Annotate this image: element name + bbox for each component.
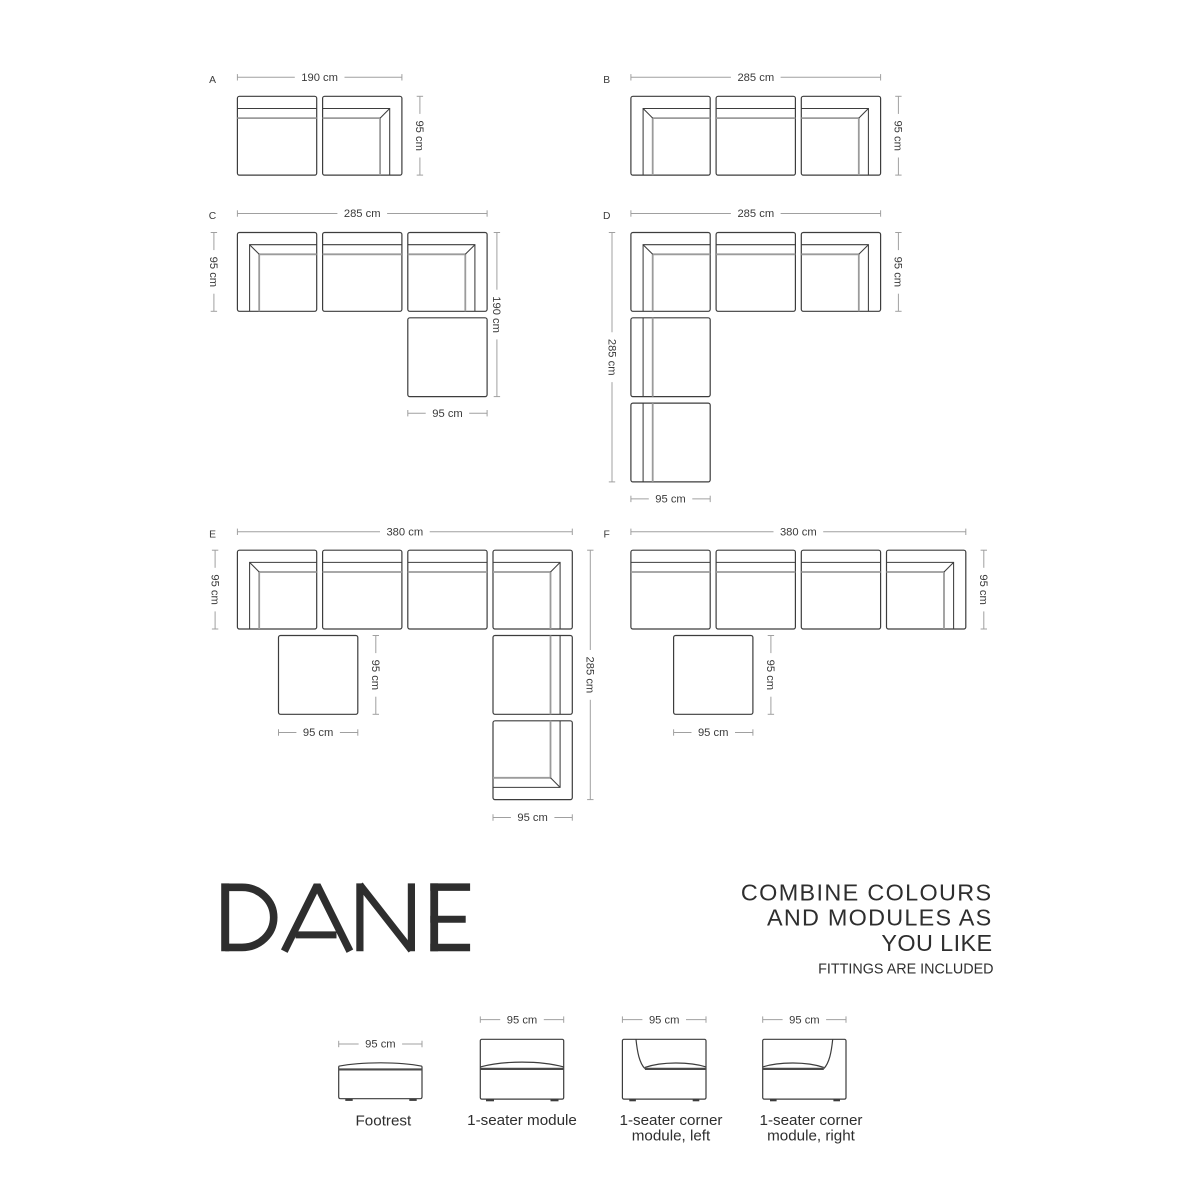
- svg-text:95 cm: 95 cm: [365, 1039, 395, 1051]
- svg-text:A: A: [209, 75, 216, 86]
- svg-text:Footrest: Footrest: [356, 1113, 412, 1130]
- svg-text:AND MODULES AS: AND MODULES AS: [767, 905, 992, 931]
- svg-text:95 cm: 95 cm: [892, 120, 904, 150]
- svg-text:1-seater corner: 1-seater corner: [620, 1112, 723, 1129]
- svg-text:YOU LIKE: YOU LIKE: [881, 930, 992, 956]
- svg-text:FITTINGS ARE INCLUDED: FITTINGS ARE INCLUDED: [818, 962, 993, 978]
- svg-text:95 cm: 95 cm: [432, 408, 462, 420]
- svg-text:95 cm: 95 cm: [789, 1014, 819, 1026]
- svg-text:285 cm: 285 cm: [605, 339, 617, 376]
- svg-text:285 cm: 285 cm: [737, 208, 774, 220]
- svg-text:C: C: [209, 211, 217, 222]
- svg-text:95 cm: 95 cm: [977, 574, 989, 604]
- svg-text:95 cm: 95 cm: [655, 494, 685, 506]
- svg-text:95 cm: 95 cm: [698, 727, 728, 739]
- svg-text:module, right: module, right: [767, 1127, 856, 1144]
- svg-text:380 cm: 380 cm: [780, 527, 817, 539]
- svg-text:COMBINE COLOURS: COMBINE COLOURS: [741, 880, 993, 906]
- svg-text:95 cm: 95 cm: [369, 660, 381, 690]
- svg-text:95 cm: 95 cm: [764, 660, 776, 690]
- svg-text:95 cm: 95 cm: [649, 1014, 679, 1026]
- svg-text:285 cm: 285 cm: [344, 208, 381, 220]
- svg-text:95 cm: 95 cm: [207, 257, 219, 287]
- svg-text:285 cm: 285 cm: [584, 657, 596, 694]
- svg-text:95 cm: 95 cm: [208, 574, 220, 604]
- svg-text:380 cm: 380 cm: [386, 527, 423, 539]
- svg-text:95 cm: 95 cm: [413, 120, 425, 150]
- svg-text:F: F: [604, 529, 610, 540]
- svg-text:95 cm: 95 cm: [507, 1014, 537, 1026]
- svg-text:285 cm: 285 cm: [737, 72, 774, 84]
- svg-text:95 cm: 95 cm: [892, 257, 904, 287]
- svg-text:module, left: module, left: [632, 1127, 711, 1144]
- svg-text:E: E: [209, 529, 216, 540]
- svg-text:B: B: [603, 75, 610, 86]
- svg-text:190 cm: 190 cm: [490, 296, 502, 333]
- svg-text:1-seater corner: 1-seater corner: [760, 1112, 863, 1129]
- svg-text:95 cm: 95 cm: [303, 727, 333, 739]
- svg-text:190 cm: 190 cm: [301, 72, 338, 84]
- svg-text:95 cm: 95 cm: [517, 812, 547, 824]
- svg-text:1-seater module: 1-seater module: [467, 1112, 577, 1129]
- svg-text:D: D: [603, 211, 610, 222]
